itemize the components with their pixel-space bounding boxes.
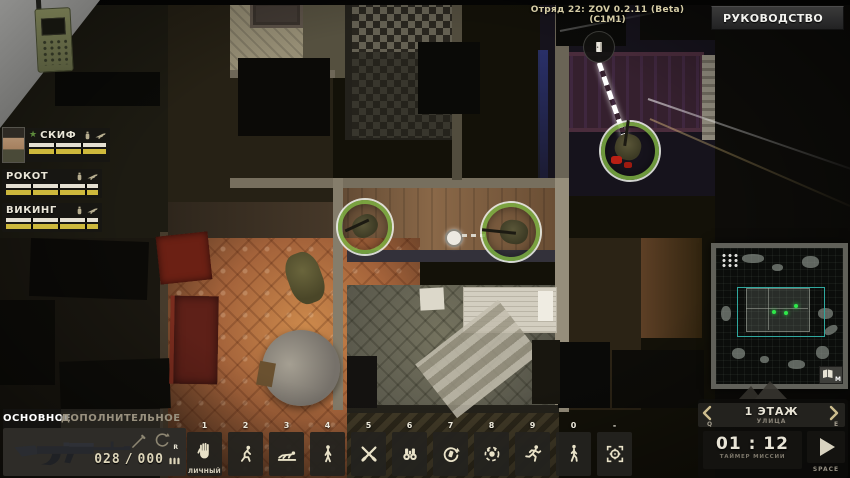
slot-keybind: -	[597, 421, 632, 430]
minimap-dot-grid	[721, 253, 739, 268]
crouch-icon	[235, 443, 257, 465]
slot-keybind: 5	[351, 421, 386, 430]
unit-selection-ring[interactable]	[338, 200, 392, 254]
slot-keybind: 3	[269, 421, 304, 430]
action-slot-grenade[interactable]: 8	[474, 432, 509, 476]
minimap-terrain	[788, 360, 805, 369]
chevron-right-icon	[828, 405, 840, 421]
action-slot-binoculars[interactable]: 6	[392, 432, 427, 476]
scene-paper	[419, 287, 444, 310]
unit-wound-marker	[611, 156, 622, 164]
action-slot-personal[interactable]: 1 ЛИЧНЫЙ	[187, 432, 222, 476]
hand-icon	[194, 440, 216, 462]
floor-subtitle: УЛИЦА	[698, 418, 845, 425]
play-pause-button[interactable]	[807, 431, 845, 463]
grenade-icon	[84, 131, 91, 140]
slot-keybind: 4	[310, 421, 345, 430]
rifle-icon	[87, 173, 98, 181]
radio-keypad	[41, 38, 68, 65]
minimap[interactable]: M	[711, 243, 848, 389]
map-keybind: M	[835, 376, 841, 383]
action-slot-crouch[interactable]: 2	[228, 432, 263, 476]
grenade-icon	[76, 206, 83, 215]
minimap-terrain	[802, 256, 819, 268]
minimap-terrain	[742, 254, 764, 263]
scene-furniture	[418, 42, 480, 114]
scene-furniture	[612, 350, 704, 408]
minimap-unit-dot	[772, 310, 776, 314]
member-stamina-bar	[6, 224, 98, 229]
squad-member-row[interactable]: ★ СКИФ	[2, 127, 108, 163]
squad-member-row[interactable]: ВИКИНГ	[2, 203, 102, 232]
play-keybind: SPACE	[807, 466, 845, 473]
action-slot-melee[interactable]: 5	[351, 432, 386, 476]
ammo-reserve: 000	[138, 452, 164, 467]
radio-icon	[34, 7, 73, 73]
scene-red-sofa	[169, 296, 219, 385]
scene-blue-glow	[538, 50, 548, 196]
unit-wound-marker	[624, 162, 632, 168]
scene-carpet-dark	[556, 52, 704, 132]
reload-icon	[440, 443, 462, 465]
minimap-viewport-rect	[737, 287, 825, 337]
member-name: РОКОТ	[6, 171, 73, 182]
slot-keybind: 6	[392, 421, 427, 430]
prone-icon	[276, 443, 298, 465]
scene-pillow	[538, 291, 553, 321]
scene-furniture	[55, 72, 160, 106]
scene-furniture	[59, 358, 171, 412]
floor-next-keybind: E	[834, 421, 838, 428]
scene-furniture	[0, 300, 55, 385]
minimap-unit-dot	[784, 311, 788, 315]
slot-keybind: 0	[556, 421, 591, 430]
minimap-unit-dot	[794, 304, 798, 308]
tab-secondary[interactable]: ДОПОЛНИТЕЛЬНОЕ	[61, 409, 163, 428]
member-stamina-bar	[29, 149, 106, 154]
slot-keybind: 1	[187, 421, 222, 430]
squad-member-row[interactable]: РОКОТ	[2, 169, 102, 198]
minimap-terrain	[721, 306, 731, 321]
minimap-terrain	[760, 356, 769, 363]
stand-icon	[317, 443, 339, 465]
action-slot-walk[interactable]: 0	[556, 432, 591, 476]
slot-keybind: 9	[515, 421, 550, 430]
manual-button[interactable]: РУКОВОДСТВО	[711, 6, 844, 30]
member-health-bar	[6, 218, 98, 222]
member-name: ВИКИНГ	[6, 205, 73, 216]
faction-emblem	[737, 381, 792, 399]
minimap-terrain	[772, 264, 783, 271]
floor-selector: Q 1 ЭТАЖ УЛИЦА E	[698, 403, 845, 427]
slot-keybind: 8	[474, 421, 509, 430]
action-slot-reload[interactable]: 7	[433, 432, 468, 476]
reload-circle-icon	[153, 431, 171, 449]
walk-icon	[563, 443, 585, 465]
minimap-terrain	[732, 348, 745, 359]
action-slot-prone[interactable]: 3	[269, 432, 304, 476]
member-health-bar	[6, 184, 98, 188]
scene-radiator	[702, 55, 715, 140]
run-icon	[522, 443, 544, 465]
ammo-magazine: 028	[94, 452, 120, 467]
mission-timer: 01 : 12 ТАЙМЕР МИССИИ	[703, 431, 802, 469]
weapon-panel: R 028 / 000	[3, 428, 186, 476]
game-screen: Отряд 22: ZOV 0.2.11 (Beta) (C1M1) РУКОВ…	[0, 0, 850, 478]
member-portrait	[2, 127, 25, 163]
scene-red-cabinet	[156, 231, 213, 284]
scene-door-area	[640, 238, 702, 338]
member-health-bar	[29, 143, 106, 147]
slot-keybind: 7	[433, 421, 468, 430]
version-line2: (C1M1)	[480, 15, 735, 25]
unit-selection-ring[interactable]	[482, 203, 540, 261]
action-slot-stand[interactable]: 4	[310, 432, 345, 476]
ammo-counter: 028 / 000	[3, 452, 181, 467]
floor-title: 1 ЭТАЖ	[698, 405, 845, 418]
scene-wall	[230, 178, 563, 188]
leader-star-icon: ★	[29, 131, 37, 140]
slot-keybind: 2	[228, 421, 263, 430]
bullets-icon	[168, 454, 181, 465]
scene-furniture	[558, 342, 610, 408]
door-action-marker[interactable]	[583, 31, 615, 63]
map-toggle-button[interactable]: M	[819, 366, 843, 384]
radio-menu-button[interactable]	[34, 7, 71, 71]
grenade-icon	[481, 443, 503, 465]
version-line1: Отряд 22: ZOV 0.2.11 (Beta)	[480, 5, 735, 15]
scene-dresser	[532, 340, 560, 404]
door-icon	[591, 39, 607, 55]
unit-selection-ring[interactable]	[601, 122, 659, 180]
scene-furniture	[238, 58, 330, 136]
version-info: Отряд 22: ZOV 0.2.11 (Beta) (C1M1)	[480, 5, 735, 25]
member-stamina-bar	[6, 190, 98, 195]
grenade-icon	[76, 172, 83, 181]
reload-keybind: R	[173, 444, 178, 451]
rifle-icon	[95, 132, 106, 140]
member-name: СКИФ	[40, 130, 81, 141]
tab-primary[interactable]: ОСНОВНОЕ	[3, 409, 61, 428]
radio-screen	[41, 17, 66, 35]
crosshair-icon	[604, 443, 626, 465]
scene-furniture	[29, 238, 149, 300]
scene-dresser	[347, 356, 377, 408]
action-slot-focus-fire[interactable]: -	[597, 432, 632, 476]
melee-icon	[358, 443, 380, 465]
cleaning-rod-icon[interactable]	[131, 434, 146, 449]
timer-value: 01 : 12	[703, 434, 802, 454]
waypoint-dot	[445, 229, 463, 247]
floor-next-button[interactable]: E	[828, 405, 842, 425]
action-slot-run[interactable]: 9	[515, 432, 550, 476]
play-icon	[820, 438, 835, 456]
reload-indicator[interactable]: R	[153, 431, 175, 451]
rifle-icon	[87, 207, 98, 215]
ammo-separator: /	[125, 452, 134, 467]
slot-label: ЛИЧНЫЙ	[187, 468, 222, 475]
binoculars-icon	[399, 443, 421, 465]
timer-label: ТАЙМЕР МИССИИ	[703, 454, 802, 460]
map-icon	[822, 369, 834, 379]
minimap-terrain	[816, 346, 829, 359]
